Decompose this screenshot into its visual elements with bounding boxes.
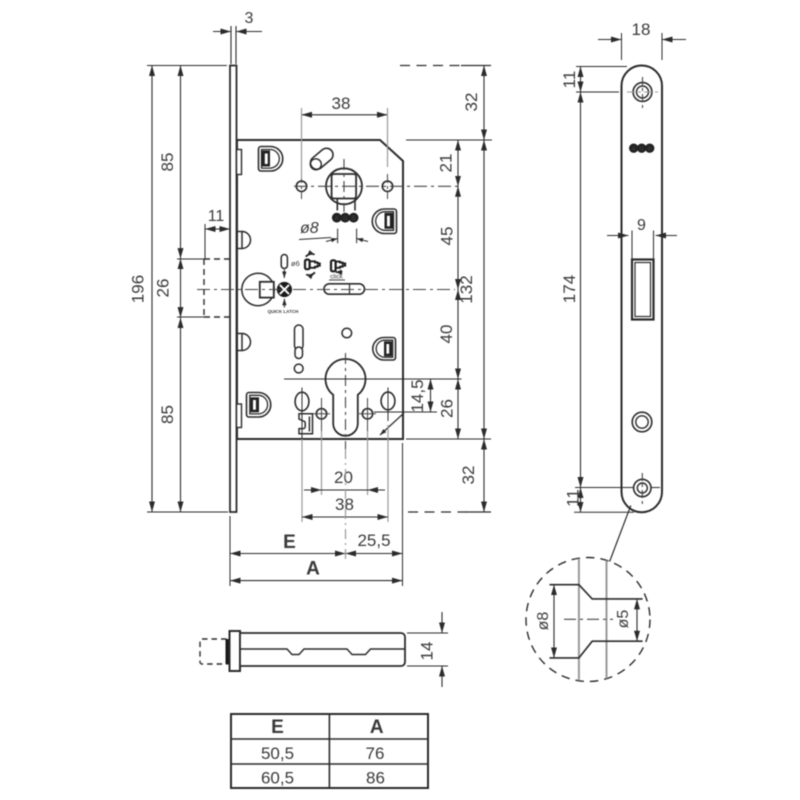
svg-text:26: 26: [438, 399, 457, 418]
svg-text:60,5: 60,5: [261, 769, 294, 788]
svg-text:B: B: [351, 216, 356, 222]
svg-text:11: 11: [208, 208, 225, 225]
svg-text:click: click: [330, 274, 343, 281]
svg-text:26: 26: [154, 279, 173, 298]
svg-text:174: 174: [560, 275, 579, 303]
svg-text:ø8: ø8: [300, 220, 319, 237]
svg-text:E: E: [283, 532, 296, 553]
svg-text:45: 45: [438, 227, 457, 246]
svg-text:86: 86: [366, 769, 385, 788]
svg-text:20: 20: [334, 468, 353, 487]
svg-text:18: 18: [632, 20, 651, 39]
svg-text:50,5: 50,5: [261, 744, 294, 763]
svg-text:3: 3: [245, 10, 254, 27]
svg-text:85: 85: [158, 153, 177, 172]
svg-text:A: A: [370, 717, 384, 738]
svg-text:32: 32: [459, 466, 478, 485]
svg-text:E: E: [271, 717, 284, 738]
svg-text:25,5: 25,5: [357, 531, 390, 550]
svg-text:B: B: [648, 146, 652, 152]
svg-text:76: 76: [366, 744, 385, 763]
svg-text:11: 11: [563, 489, 582, 507]
svg-text:A: A: [306, 559, 320, 580]
svg-text:ø5: ø5: [615, 610, 632, 629]
svg-text:40: 40: [437, 325, 456, 344]
svg-text:9: 9: [637, 217, 646, 234]
svg-text:14,5: 14,5: [408, 379, 427, 412]
svg-text:11: 11: [560, 71, 579, 89]
svg-text:G: G: [639, 146, 644, 152]
svg-text:196: 196: [129, 275, 148, 303]
svg-text:32: 32: [462, 93, 481, 112]
svg-text:ø6: ø6: [291, 259, 300, 268]
svg-text:132: 132: [457, 275, 476, 303]
svg-text:38: 38: [335, 495, 354, 514]
svg-text:14: 14: [418, 642, 437, 661]
svg-text:A: A: [335, 216, 340, 222]
svg-text:ø8: ø8: [535, 612, 552, 631]
svg-text:QUICK LATCH: QUICK LATCH: [268, 309, 299, 314]
svg-text:21: 21: [437, 154, 456, 173]
svg-text:G: G: [343, 216, 348, 222]
svg-text:38: 38: [332, 94, 351, 113]
svg-text:85: 85: [158, 405, 177, 424]
